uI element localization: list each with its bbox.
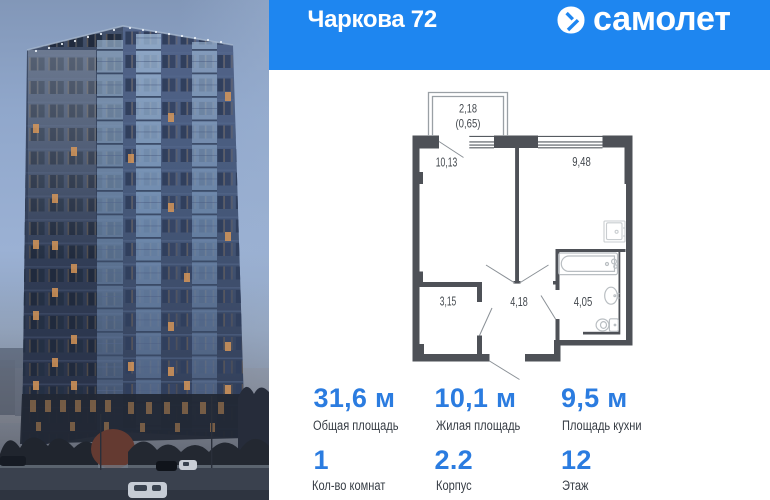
svg-text:3,15: 3,15: [440, 294, 457, 309]
svg-text:4,05: 4,05: [574, 294, 593, 309]
svg-text:2,18: 2,18: [459, 102, 477, 116]
svg-text:4,18: 4,18: [510, 294, 528, 309]
svg-text:9,48: 9,48: [572, 154, 591, 169]
svg-text:10,13: 10,13: [436, 155, 458, 170]
svg-text:(0,65): (0,65): [456, 117, 481, 131]
